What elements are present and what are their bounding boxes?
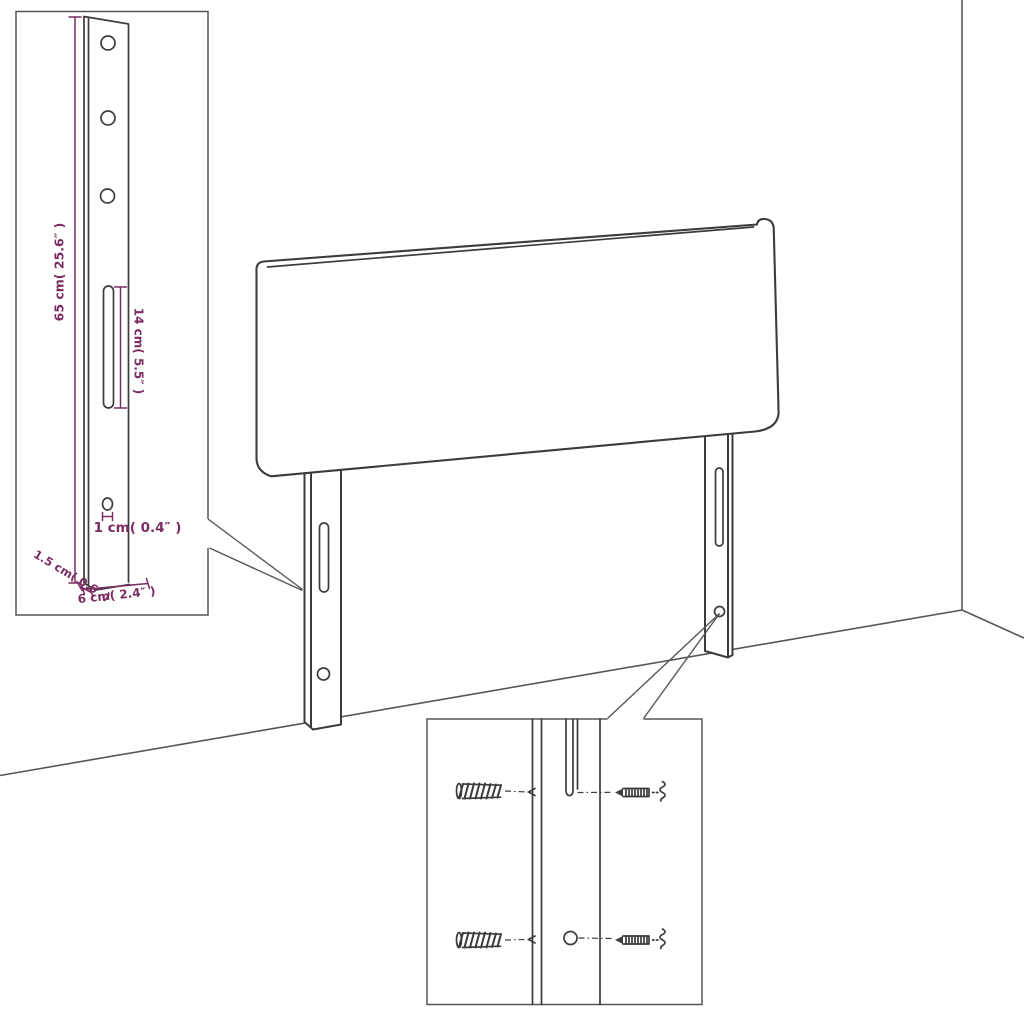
leg-dimension-inset: 65 cm( 25.6″ ) 14 cm( 5.5″ ) 1 cm( 0.4″ … <box>16 12 208 616</box>
mounting-detail-inset <box>427 719 702 1005</box>
left-leg-callout <box>208 519 303 591</box>
inset-box-border <box>427 719 702 1005</box>
diagram-canvas: 65 cm( 25.6″ ) 14 cm( 5.5″ ) 1 cm( 0.4″ … <box>0 0 1024 1024</box>
hole-dimension-label: 1 cm( 0.4″ ) <box>94 520 182 536</box>
screw-guide-bottom <box>579 938 613 939</box>
headboard-dimension-diagram: 65 cm( 25.6″ ) 14 cm( 5.5″ ) 1 cm( 0.4″ … <box>0 0 1024 1024</box>
floor-line-right <box>962 610 1024 638</box>
headboard-panel <box>256 219 778 476</box>
slot-dimension-label: 14 cm( 5.5″ ) <box>132 308 146 394</box>
mounting-callout <box>608 614 720 719</box>
callout-line-left <box>608 614 720 719</box>
panel-outline <box>256 219 778 476</box>
left-leg-face <box>305 462 342 730</box>
headboard-left-leg <box>305 462 342 730</box>
callout-line-right <box>644 614 720 719</box>
height-dimension-label: 65 cm( 25.6″ ) <box>52 223 67 322</box>
